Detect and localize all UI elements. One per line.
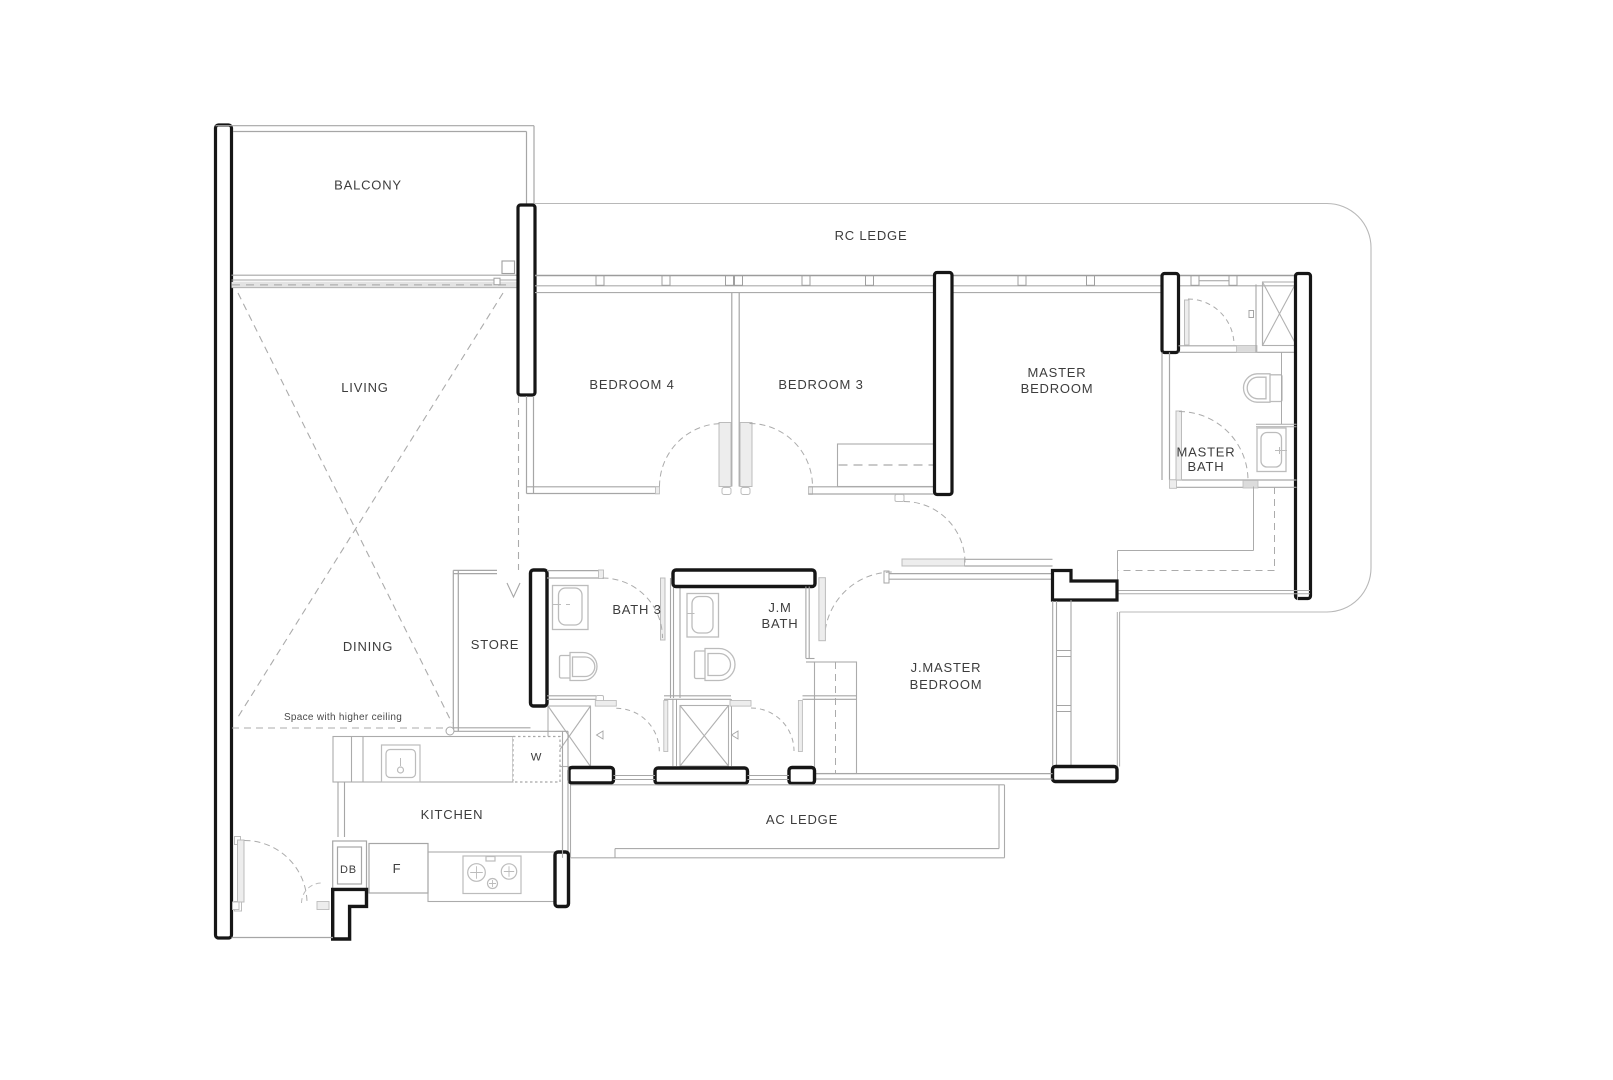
- svg-text:Space with higher ceiling: Space with higher ceiling: [284, 712, 402, 723]
- svg-text:W: W: [531, 752, 542, 764]
- svg-text:MASTER: MASTER: [1028, 365, 1087, 380]
- svg-text:STORE: STORE: [471, 637, 520, 652]
- svg-text:BATH: BATH: [762, 616, 799, 631]
- svg-text:J.M: J.M: [768, 600, 791, 615]
- svg-text:AC LEDGE: AC LEDGE: [766, 812, 838, 827]
- svg-text:KITCHEN: KITCHEN: [421, 807, 484, 822]
- svg-text:LIVING: LIVING: [341, 380, 388, 395]
- svg-text:BATH: BATH: [1188, 459, 1225, 474]
- svg-text:BEDROOM 4: BEDROOM 4: [589, 377, 674, 392]
- svg-text:DINING: DINING: [343, 639, 393, 654]
- svg-text:RC LEDGE: RC LEDGE: [835, 228, 908, 243]
- svg-text:J.MASTER: J.MASTER: [911, 660, 982, 675]
- svg-text:F: F: [393, 861, 402, 876]
- svg-text:BATH 3: BATH 3: [612, 602, 661, 617]
- svg-text:BEDROOM 3: BEDROOM 3: [778, 377, 863, 392]
- svg-text:BALCONY: BALCONY: [334, 178, 402, 193]
- svg-text:BEDROOM: BEDROOM: [1021, 381, 1094, 396]
- svg-text:BEDROOM: BEDROOM: [910, 677, 983, 692]
- svg-text:MASTER: MASTER: [1177, 445, 1236, 460]
- svg-text:DB: DB: [340, 864, 357, 876]
